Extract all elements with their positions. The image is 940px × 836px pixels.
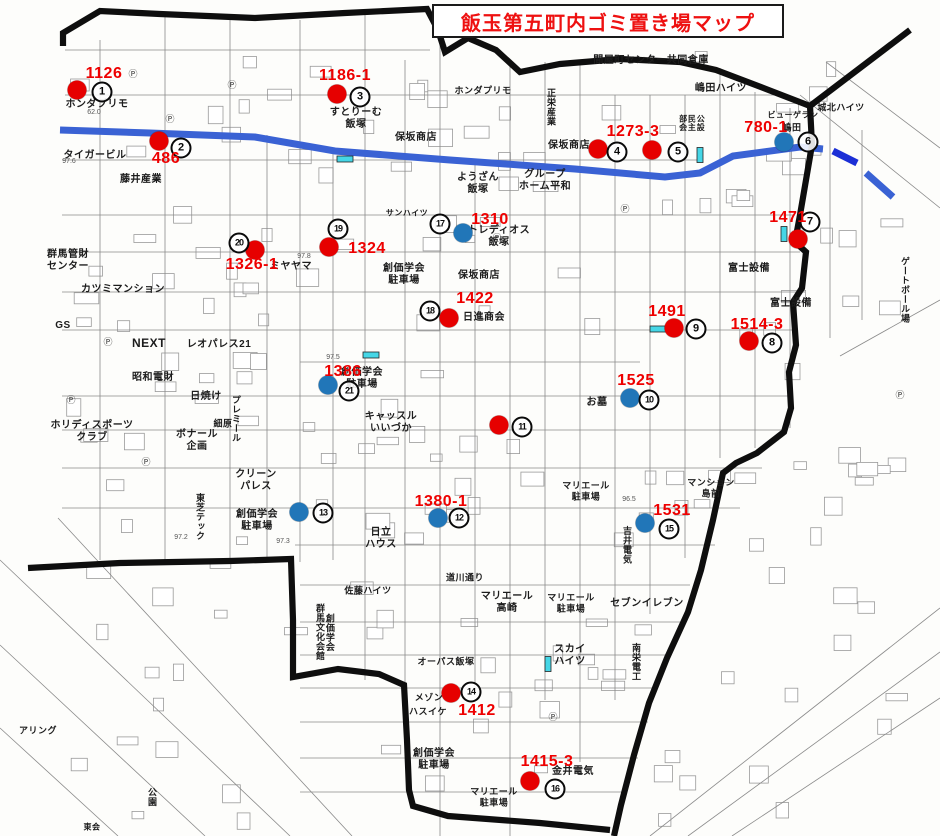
map-title: 飯玉第五町内ゴミ置き場マップ — [461, 7, 755, 36]
building-outline — [243, 56, 256, 68]
building-outline — [834, 588, 857, 604]
building-outline — [410, 84, 425, 100]
building-outline — [460, 436, 477, 452]
building-outline — [351, 582, 374, 595]
building-outline — [888, 458, 906, 472]
building-outline — [468, 498, 480, 515]
parking-icon: Ⓟ — [66, 395, 75, 405]
building-outline — [162, 353, 179, 371]
garbage-point-dot-11-red[interactable] — [490, 416, 509, 435]
garbage-point-dot-10-blue[interactable] — [621, 389, 640, 408]
marker-number-4[interactable]: 4 — [607, 142, 628, 163]
parking-icon: Ⓟ — [548, 712, 557, 722]
marker-number-5[interactable]: 5 — [668, 142, 689, 163]
building-outline — [521, 472, 544, 486]
building-outline — [381, 399, 398, 417]
marker-address-label-15: 1531 — [653, 502, 691, 520]
parking-icon: Ⓟ — [141, 457, 150, 467]
building-outline — [722, 672, 735, 684]
marker-address-label-12: 1380-1 — [415, 493, 468, 511]
building-outline — [153, 698, 163, 711]
building-outline — [423, 237, 441, 251]
building-outline — [145, 667, 159, 678]
building-outline — [428, 91, 447, 108]
building-outline — [84, 429, 108, 442]
building-outline — [834, 635, 851, 650]
building-outline — [558, 268, 580, 278]
building-outline — [585, 319, 600, 335]
marker-number-17[interactable]: 17 — [430, 214, 451, 235]
building-outline — [97, 624, 108, 639]
marker-address-label-10: 1525 — [617, 372, 655, 390]
building-outline — [155, 382, 176, 392]
garbage-point-dot-8-red[interactable] — [740, 332, 759, 351]
building-outline — [735, 473, 756, 484]
marker-address-label-18: 1422 — [456, 290, 494, 308]
building-outline — [886, 693, 907, 700]
building-outline — [107, 480, 124, 491]
marker-address-label-4: 1273-3 — [607, 123, 660, 141]
parking-icon: Ⓟ — [492, 233, 501, 243]
parking-icon: Ⓟ — [227, 80, 236, 90]
building-outline — [359, 444, 375, 454]
marker-number-3[interactable]: 3 — [350, 87, 371, 108]
marker-address-label-21: 1386 — [324, 363, 362, 381]
marker-address-label-19: 1324 — [348, 240, 386, 258]
building-outline — [223, 785, 241, 803]
marker-number-21[interactable]: 21 — [339, 381, 360, 402]
building-outline — [750, 766, 769, 783]
building-outline — [533, 181, 558, 191]
building-outline — [153, 274, 175, 289]
building-outline — [204, 298, 215, 313]
building-outline — [377, 437, 398, 444]
building-outline — [665, 751, 680, 763]
marker-address-label-7: 1471 — [769, 209, 807, 227]
elevation-value: 97.6 — [62, 158, 76, 165]
cyan-collection-mark[interactable] — [337, 156, 353, 162]
building-outline — [777, 103, 799, 112]
marker-address-label-17: 1310 — [471, 211, 509, 229]
building-outline — [237, 372, 252, 384]
elevation-value: 97.3 — [276, 538, 290, 545]
building-outline — [654, 766, 672, 782]
marker-number-1[interactable]: 1 — [92, 82, 113, 103]
marker-address-label-8: 1514-3 — [731, 316, 784, 334]
building-outline — [769, 568, 784, 584]
elevation-value: 97.8 — [297, 253, 311, 260]
marker-number-16[interactable]: 16 — [545, 779, 566, 800]
street-line — [650, 608, 940, 836]
building-outline — [499, 107, 510, 120]
garbage-point-dot-19-red[interactable] — [320, 238, 339, 257]
garbage-point-dot-2-red[interactable] — [150, 132, 169, 151]
parking-icon: Ⓟ — [895, 390, 904, 400]
building-outline — [750, 539, 764, 552]
marker-number-11[interactable]: 11 — [512, 417, 533, 438]
building-outline — [586, 619, 607, 626]
building-outline — [196, 248, 220, 259]
parking-icon: Ⓟ — [620, 204, 629, 214]
garbage-point-dot-16-red[interactable] — [521, 772, 540, 791]
building-outline — [464, 126, 489, 138]
building-outline — [811, 528, 822, 545]
building-outline — [663, 200, 673, 215]
garbage-point-dot-9-red[interactable] — [665, 319, 684, 338]
elevation-value: 96.5 — [622, 496, 636, 503]
marker-address-label-9: 1491 — [648, 303, 686, 321]
building-outline — [127, 146, 146, 157]
building-outline — [77, 318, 92, 327]
building-outline — [667, 471, 684, 485]
parking-icon: Ⓟ — [103, 337, 112, 347]
building-outline — [367, 627, 383, 639]
building-outline — [535, 680, 552, 691]
marker-number-9[interactable]: 9 — [686, 319, 707, 340]
building-outline — [524, 152, 546, 163]
building-outline — [507, 439, 520, 453]
marker-address-label-3: 1186-1 — [319, 67, 371, 85]
building-outline — [237, 813, 250, 829]
garbage-point-dot-1-red[interactable] — [68, 81, 87, 100]
blue-road-dash — [833, 151, 857, 163]
building-outline — [173, 664, 183, 680]
cyan-collection-mark[interactable] — [545, 657, 551, 672]
building-outline — [588, 668, 598, 680]
building-outline — [214, 610, 227, 618]
building-outline — [499, 177, 518, 190]
garbage-point-dot-15-blue[interactable] — [636, 514, 655, 533]
building-outline — [821, 228, 833, 243]
elevation-value: 97.2 — [174, 534, 188, 541]
building-outline — [153, 588, 174, 606]
building-outline — [405, 533, 424, 544]
garbage-point-dot-5-red[interactable] — [643, 141, 662, 160]
building-outline — [680, 776, 696, 790]
marker-number-18[interactable]: 18 — [420, 301, 441, 322]
cyan-collection-mark[interactable] — [781, 227, 787, 242]
garbage-point-dot-7-red[interactable] — [789, 230, 808, 249]
building-outline — [208, 106, 223, 123]
garbage-point-dot-17-blue[interactable] — [454, 224, 473, 243]
building-outline — [602, 106, 621, 121]
elevation-value: 97.5 — [326, 354, 340, 361]
building-outline — [156, 742, 178, 758]
garbage-point-dot-3-red[interactable] — [328, 85, 347, 104]
marker-number-14[interactable]: 14 — [461, 682, 482, 703]
building-outline — [132, 811, 144, 818]
parking-icon: Ⓟ — [128, 69, 137, 79]
building-outline — [71, 758, 87, 771]
building-outline — [737, 190, 750, 200]
building-outline — [858, 602, 875, 614]
marker-address-label-6: 780-1 — [744, 119, 787, 137]
building-outline — [481, 658, 495, 673]
garbage-point-dot-13-blue[interactable] — [290, 503, 309, 522]
elevation-value: 62.0 — [87, 109, 101, 116]
marker-address-label-16: 1415-3 — [521, 753, 574, 771]
building-outline — [237, 537, 248, 545]
garbage-map-canvas: ⓅⓅⓅⓅⓅⓅⓅⓅⓅⓅ97.662.097.897.597.297.396.5 ホ… — [0, 0, 940, 836]
building-outline — [553, 646, 563, 661]
building-outline — [239, 100, 249, 113]
map-title-box: 飯玉第五町内ゴミ置き場マップ — [432, 4, 784, 38]
building-outline — [474, 719, 489, 733]
street-line — [0, 728, 118, 836]
marker-number-13[interactable]: 13 — [313, 503, 334, 524]
building-outline — [635, 625, 651, 635]
building-outline — [700, 198, 711, 212]
building-outline — [839, 231, 856, 247]
building-outline — [409, 426, 424, 442]
building-outline — [578, 654, 594, 665]
blue-road-dash — [866, 173, 893, 197]
building-outline — [824, 497, 842, 515]
building-outline — [601, 681, 624, 690]
marker-number-6[interactable]: 6 — [798, 132, 819, 153]
building-outline — [839, 448, 861, 464]
marker-number-19[interactable]: 19 — [328, 219, 349, 240]
building-outline — [603, 670, 626, 679]
building-outline — [794, 462, 807, 470]
building-outline — [776, 803, 789, 819]
building-outline — [645, 471, 656, 484]
building-outline — [381, 745, 400, 754]
building-outline — [660, 126, 676, 134]
marker-address-label-20: 1326-1 — [226, 256, 279, 274]
garbage-point-dot-12-blue[interactable] — [429, 509, 448, 528]
marker-address-label-1: 1126 — [86, 65, 123, 83]
building-outline — [429, 129, 453, 146]
street-line — [826, 62, 940, 148]
building-outline — [366, 513, 390, 529]
garbage-point-dot-18-red[interactable] — [440, 309, 459, 328]
building-outline — [74, 293, 99, 304]
marker-number-15[interactable]: 15 — [659, 519, 680, 540]
building-outline — [89, 266, 103, 276]
building-outline — [695, 51, 707, 62]
parking-icon: Ⓟ — [165, 114, 174, 124]
marker-number-8[interactable]: 8 — [762, 333, 783, 354]
building-outline — [251, 354, 267, 370]
building-outline — [321, 453, 336, 463]
building-outline — [877, 465, 890, 473]
building-outline — [377, 610, 393, 628]
cyan-collection-mark[interactable] — [697, 148, 703, 163]
garbage-point-dot-4-red[interactable] — [589, 140, 608, 159]
building-outline — [694, 500, 710, 508]
cyan-collection-mark[interactable] — [363, 352, 379, 358]
building-outline — [199, 374, 214, 383]
building-outline — [121, 520, 132, 533]
building-outline — [855, 477, 873, 485]
building-outline — [785, 688, 798, 702]
building-outline — [117, 737, 138, 745]
district-border — [28, 559, 610, 830]
marker-address-label-14: 1412 — [458, 702, 496, 720]
building-outline — [134, 235, 156, 243]
street-line — [0, 560, 290, 836]
building-outline — [319, 168, 333, 183]
garbage-point-dot-14-red[interactable] — [442, 684, 461, 703]
building-outline — [124, 433, 144, 450]
marker-address-label-2: 486 — [152, 150, 180, 168]
marker-number-10[interactable]: 10 — [639, 390, 660, 411]
building-outline — [843, 296, 859, 307]
building-outline — [879, 301, 900, 315]
building-outline — [857, 462, 878, 475]
building-outline — [238, 416, 259, 426]
building-outline — [881, 219, 903, 227]
marker-number-20[interactable]: 20 — [229, 233, 250, 254]
building-outline — [391, 162, 411, 171]
building-outline — [425, 776, 444, 791]
